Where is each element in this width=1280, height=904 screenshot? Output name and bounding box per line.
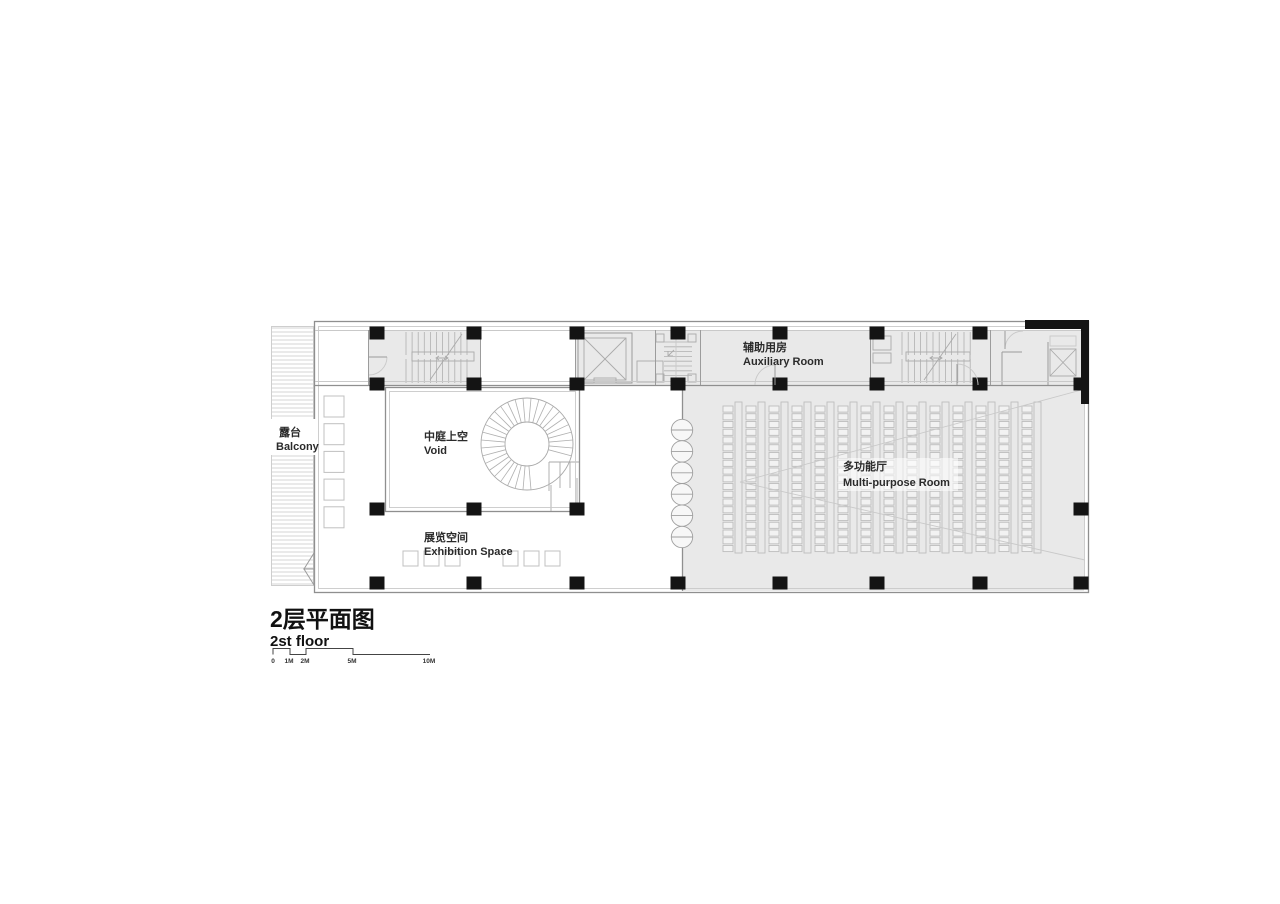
void-label-en: Void [424, 445, 447, 457]
multipurpose-label-zh: 多功能厅 [843, 459, 887, 473]
title-block: 2层平面图 2st floor [270, 606, 375, 650]
balcony-deck [272, 327, 314, 586]
auxiliary-label-zh: 辅助用房 [743, 340, 787, 354]
balcony-hatch [272, 328, 313, 584]
exhibition-label-en: Exhibition Space [424, 546, 513, 558]
scale-tick-10m: 10M [423, 658, 436, 665]
scale-tick-1m: 1M [284, 658, 293, 665]
balcony-label-en: Balcony [276, 441, 320, 453]
floor-plan-page: 露台 Balcony 中庭上空 Void 展览空间 Exhibition Spa… [0, 0, 1280, 904]
exhibition-label-zh: 展览空间 [423, 530, 468, 544]
spiral-stair-treads [481, 398, 573, 490]
void-label-zh: 中庭上空 [424, 429, 468, 443]
exhibition-pedestals-left [324, 396, 344, 528]
drawing-title-en: 2st floor [270, 633, 329, 650]
scale-tick-2m: 2M [300, 658, 309, 665]
auxiliary-label-en: Auxiliary Room [743, 356, 824, 368]
scale-tick-5m: 5M [347, 658, 356, 665]
drawing-title-zh: 2层平面图 [270, 606, 375, 632]
multipurpose-label-en: Multi-purpose Room [843, 477, 950, 489]
floor-plan-drawing: 露台 Balcony 中庭上空 Void 展览空间 Exhibition Spa… [0, 0, 1280, 904]
void-guardrail [386, 388, 580, 512]
balcony-label-zh: 露台 [279, 425, 301, 439]
scale-tick-0: 0 [271, 658, 275, 665]
scale-bar: 0 1M 2M 5M 10M [271, 649, 435, 666]
spiral-stair [481, 398, 580, 512]
